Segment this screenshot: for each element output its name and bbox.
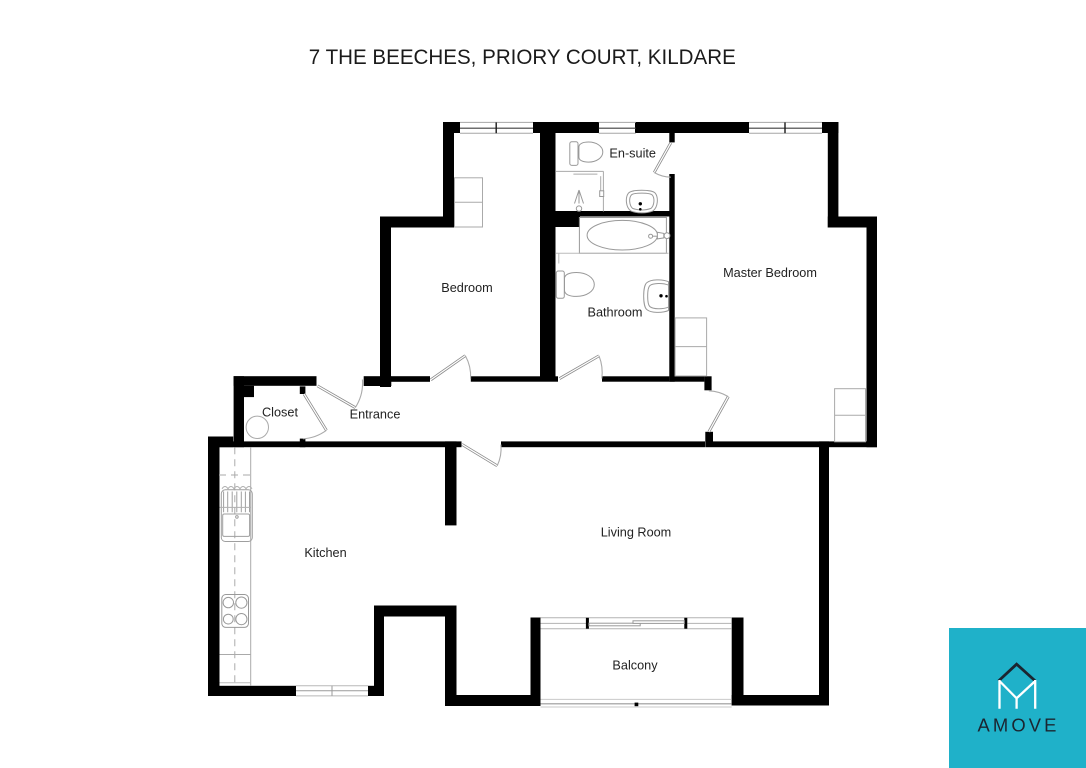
svg-text:Living Room: Living Room xyxy=(601,526,672,540)
svg-text:Closet: Closet xyxy=(262,406,298,420)
svg-text:En-suite: En-suite xyxy=(609,147,656,161)
svg-text:Bedroom: Bedroom xyxy=(441,281,492,295)
svg-text:Kitchen: Kitchen xyxy=(304,546,346,560)
svg-text:Master Bedroom: Master Bedroom xyxy=(723,266,817,280)
svg-text:Bathroom: Bathroom xyxy=(587,306,642,320)
svg-text:7 THE BEECHES, PRIORY COURT, K: 7 THE BEECHES, PRIORY COURT, KILDARE xyxy=(309,44,736,69)
svg-text:Balcony: Balcony xyxy=(612,659,658,673)
svg-text:AMOVE: AMOVE xyxy=(978,714,1060,735)
svg-text:Entrance: Entrance xyxy=(350,408,401,422)
